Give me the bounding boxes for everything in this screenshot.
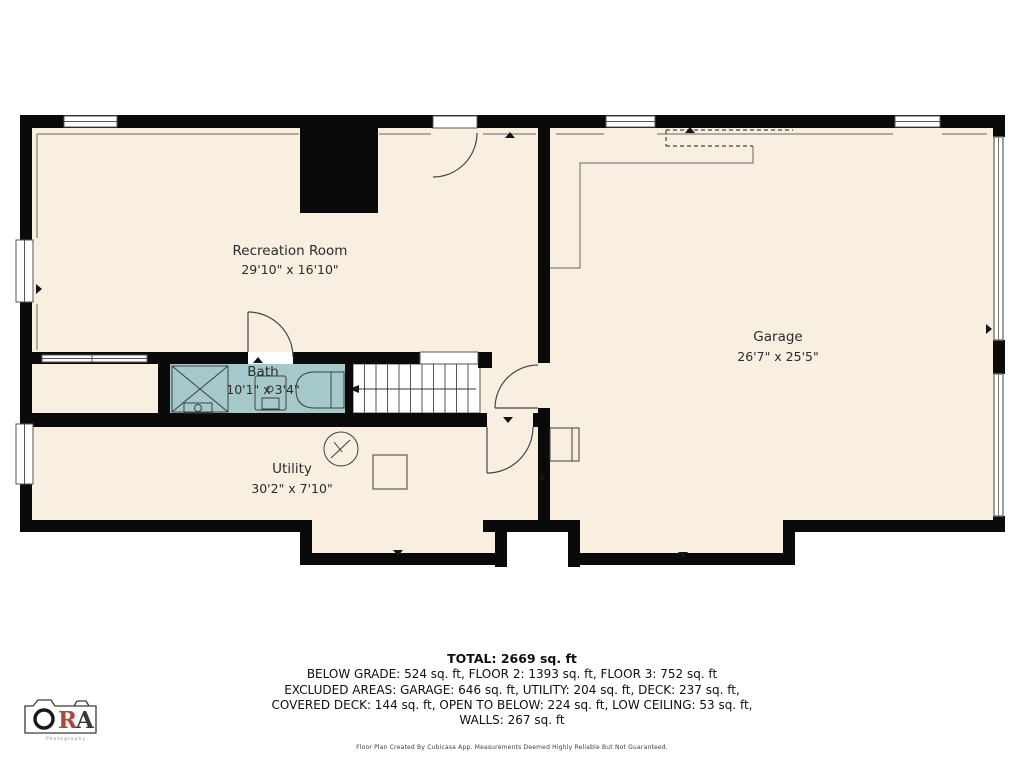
window [895, 116, 940, 127]
recreation-room-label: Recreation Room [233, 243, 348, 259]
window [606, 116, 655, 127]
ora-photography-logo: R A Photography [18, 690, 114, 748]
top-door-leaf [433, 116, 477, 128]
excluded-areas-line-1: EXCLUDED AREAS: GARAGE: 646 sq. ft, UTIL… [0, 683, 1024, 698]
staircase [349, 364, 480, 413]
bath-east-wall [345, 352, 353, 415]
floor-areas-line: BELOW GRADE: 524 sq. ft, FLOOR 2: 1393 s… [0, 667, 1024, 682]
walls-area-line: WALLS: 267 sq. ft [0, 713, 1024, 728]
interior-window [42, 355, 147, 362]
garage-door [994, 374, 1003, 516]
area-summary: TOTAL: 2669 sq. ft BELOW GRADE: 524 sq. … [0, 651, 1024, 728]
window [16, 240, 33, 302]
floor-plan-page: Recreation Room 29'10" x 16'10" Bath 10'… [0, 0, 1024, 768]
logo-letter-r: R [58, 707, 78, 734]
garage-dimensions: 26'7" x 25'5" [737, 349, 818, 364]
exterior-wall-bottom-left [20, 520, 312, 532]
window [64, 116, 117, 127]
left-bumpout-wall [300, 553, 507, 565]
logo-letter-a: A [75, 707, 95, 734]
bath-west-wall [158, 352, 170, 415]
bath-label: Bath [247, 364, 278, 380]
exterior-wall-top [20, 115, 1005, 128]
chimney-block [300, 122, 378, 213]
excluded-areas-line-2: COVERED DECK: 144 sq. ft, OPEN TO BELOW:… [0, 698, 1024, 713]
garage-divider-wall-upper [538, 128, 550, 363]
garage-label: Garage [753, 329, 802, 345]
exterior-wall-bottom-right [783, 520, 1005, 532]
utility-label: Utility [272, 461, 312, 477]
utility-north-wall [32, 413, 487, 427]
window [16, 424, 33, 484]
bath-dimensions: 10'1" x 3'4" [226, 382, 299, 397]
garage-door [994, 137, 1003, 340]
total-area: TOTAL: 2669 sq. ft [0, 651, 1024, 666]
utility-dimensions: 30'2" x 7'10" [251, 481, 332, 496]
floor-areas [26, 121, 999, 559]
disclaimer-text: Floor Plan Created By Cubicasa App. Meas… [0, 744, 1024, 751]
logo-subtitle: Photography [46, 736, 86, 742]
recreation-room-dimensions: 29'10" x 16'10" [241, 262, 338, 277]
stair-post [478, 352, 492, 368]
stair-top-opening [420, 352, 478, 364]
garage-door-pillar [993, 340, 1005, 374]
logo-letter-o-lens [35, 710, 53, 728]
recreation-room-floor [26, 121, 544, 358]
